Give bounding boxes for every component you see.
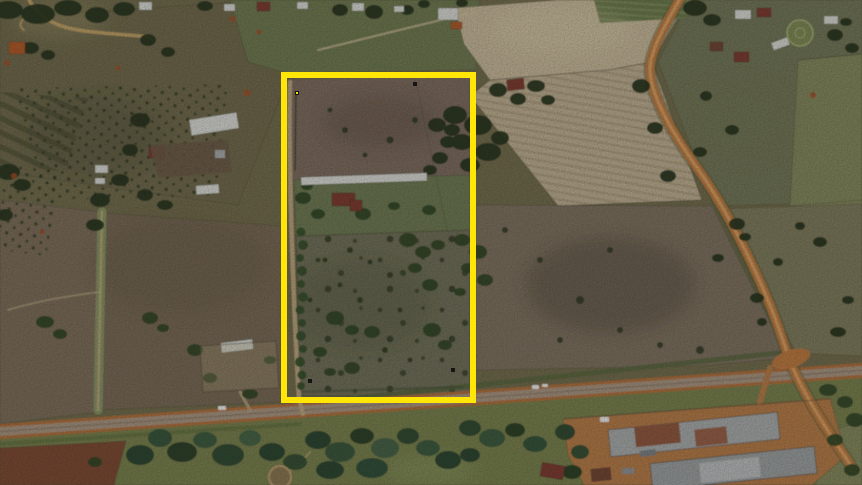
survey-marker[interactable] <box>451 368 455 372</box>
survey-marker[interactable] <box>308 379 312 383</box>
survey-marker[interactable] <box>413 82 417 86</box>
satellite-map-viewport[interactable] <box>0 0 862 485</box>
aerial-image <box>0 0 862 485</box>
survey-marker-dot <box>296 92 298 94</box>
